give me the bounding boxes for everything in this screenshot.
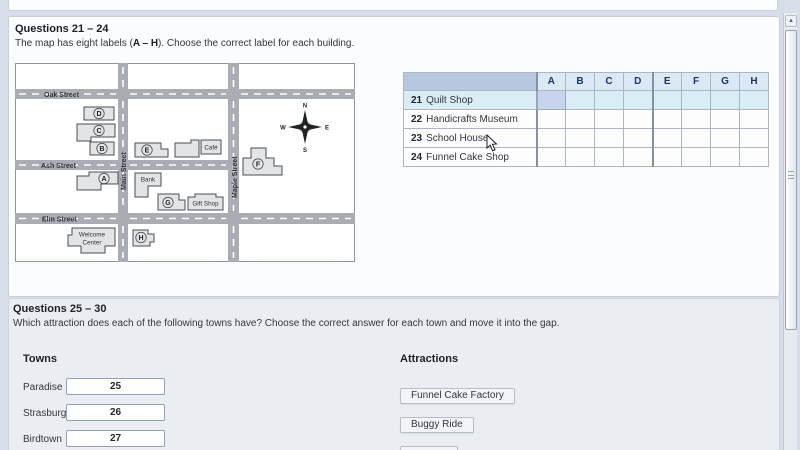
scrollbar-grip-icon bbox=[788, 171, 794, 179]
answer-cell-23-g[interactable] bbox=[711, 129, 740, 148]
answer-cell-21-b[interactable] bbox=[566, 91, 595, 110]
map-label-a: A bbox=[101, 176, 106, 183]
compass-w: W bbox=[280, 126, 286, 132]
grid-corner-cell bbox=[404, 73, 537, 91]
bank-label: Bank bbox=[141, 177, 156, 184]
oak-street-label: Oak Street bbox=[44, 92, 80, 99]
col-header-b: B bbox=[566, 73, 595, 91]
compass-s: S bbox=[303, 148, 307, 154]
welcome-center-label-1: Welcome bbox=[79, 232, 106, 239]
gap-input-25[interactable]: 25 bbox=[66, 378, 165, 395]
section-instruction: The map has eight labels (A – H). Choose… bbox=[15, 38, 354, 49]
main-street-label: Main Street bbox=[121, 152, 128, 190]
town-map: Oak Street Ash Street Elm Street Main St… bbox=[15, 63, 355, 262]
answer-cell-24-d[interactable] bbox=[624, 148, 653, 167]
answer-cell-21-f[interactable] bbox=[682, 91, 711, 110]
map-label-c: C bbox=[96, 128, 101, 135]
town-label-strasburg: Strasburg bbox=[23, 408, 66, 419]
col-header-f: F bbox=[682, 73, 711, 91]
gift-shop-label: Gift Shop bbox=[192, 201, 219, 208]
answer-cell-23-f[interactable] bbox=[682, 129, 711, 148]
answer-cell-22-g[interactable] bbox=[711, 110, 740, 129]
col-header-d: D bbox=[624, 73, 653, 91]
map-label-b: B bbox=[99, 146, 104, 153]
test-screen: Questions 21 – 24 The map has eight labe… bbox=[0, 0, 800, 450]
gap-input-27[interactable]: 27 bbox=[66, 430, 165, 447]
question-row-21: 21Quilt Shop bbox=[404, 91, 769, 110]
scrollbar-thumb[interactable] bbox=[785, 30, 797, 330]
towns-heading: Towns bbox=[23, 353, 57, 365]
col-header-a: A bbox=[537, 73, 566, 91]
cafe-label: Café bbox=[204, 145, 218, 152]
scroll-up-button[interactable]: ▲ bbox=[785, 15, 797, 27]
answer-cell-24-c[interactable] bbox=[595, 148, 624, 167]
question-row-24: 24Funnel Cake Shop bbox=[404, 148, 769, 167]
col-header-h: H bbox=[740, 73, 769, 91]
answer-cell-22-h[interactable] bbox=[740, 110, 769, 129]
question-label-24: 24Funnel Cake Shop bbox=[404, 148, 537, 167]
attractions-heading: Attractions bbox=[400, 353, 458, 365]
compass-n: N bbox=[303, 104, 307, 110]
answer-cell-24-f[interactable] bbox=[682, 148, 711, 167]
elm-street-label: Elm Street bbox=[42, 217, 77, 224]
answer-cell-24-h[interactable] bbox=[740, 148, 769, 167]
section-heading-2: Questions 25 – 30 bbox=[13, 303, 107, 315]
answer-cell-21-h[interactable] bbox=[740, 91, 769, 110]
compass-e: E bbox=[325, 126, 329, 132]
answer-cell-21-c[interactable] bbox=[595, 91, 624, 110]
question-row-22: 22Handicrafts Museum bbox=[404, 110, 769, 129]
question-label-22: 22Handicrafts Museum bbox=[404, 110, 537, 129]
answer-cell-21-g[interactable] bbox=[711, 91, 740, 110]
answer-cell-23-c[interactable] bbox=[595, 129, 624, 148]
answer-cell-23-d[interactable] bbox=[624, 129, 653, 148]
map-label-g: G bbox=[165, 200, 171, 207]
answer-cell-22-c[interactable] bbox=[595, 110, 624, 129]
welcome-center-label-2: Center bbox=[83, 240, 102, 247]
answer-cell-23-e[interactable] bbox=[653, 129, 682, 148]
answer-grid: A B C D E F G H 21Quilt Shop bbox=[403, 72, 769, 167]
map-label-e: E bbox=[145, 148, 150, 155]
answer-cell-22-e[interactable] bbox=[653, 110, 682, 129]
col-header-g: G bbox=[711, 73, 740, 91]
answer-cell-24-e[interactable] bbox=[653, 148, 682, 167]
attraction-item-funnel-cake-factory[interactable]: Funnel Cake Factory bbox=[400, 388, 515, 404]
question-label-21: 21Quilt Shop bbox=[404, 91, 537, 110]
question-row-23: 23School House bbox=[404, 129, 769, 148]
answer-cell-21-a[interactable] bbox=[537, 91, 566, 110]
vertical-scrollbar[interactable]: ▲ bbox=[783, 13, 797, 450]
mouse-cursor-icon bbox=[486, 134, 499, 153]
town-map-image: Oak Street Ash Street Elm Street Main St… bbox=[15, 63, 355, 262]
answer-cell-24-a[interactable] bbox=[537, 148, 566, 167]
previous-section-strip bbox=[8, 0, 778, 11]
map-label-f: F bbox=[256, 162, 261, 169]
section-heading: Questions 21 – 24 bbox=[15, 23, 109, 35]
ash-street-label: Ash Street bbox=[41, 163, 77, 170]
answer-cell-24-g[interactable] bbox=[711, 148, 740, 167]
answer-cell-22-f[interactable] bbox=[682, 110, 711, 129]
col-header-c: C bbox=[595, 73, 624, 91]
answer-cell-21-e[interactable] bbox=[653, 91, 682, 110]
building-unlabeled bbox=[175, 140, 199, 157]
answer-cell-21-d[interactable] bbox=[624, 91, 653, 110]
maple-street-label: Maple Street bbox=[232, 156, 239, 198]
answer-cell-22-b[interactable] bbox=[566, 110, 595, 129]
section-instruction-2: Which attraction does each of the follow… bbox=[13, 318, 559, 329]
question-label-23: 23School House bbox=[404, 129, 537, 148]
col-header-e: E bbox=[653, 73, 682, 91]
answer-cell-24-b[interactable] bbox=[566, 148, 595, 167]
map-label-d: D bbox=[96, 111, 101, 118]
answer-cell-22-a[interactable] bbox=[537, 110, 566, 129]
town-label-birdtown: Birdtown bbox=[23, 434, 62, 445]
attraction-item-buggy-ride[interactable]: Buggy Ride bbox=[400, 417, 474, 433]
gap-input-26[interactable]: 26 bbox=[66, 404, 165, 421]
attraction-item-partially-hidden[interactable] bbox=[400, 446, 458, 450]
town-label-paradise: Paradise bbox=[23, 382, 62, 393]
answer-cell-23-b[interactable] bbox=[566, 129, 595, 148]
answer-cell-22-d[interactable] bbox=[624, 110, 653, 129]
answer-cell-23-h[interactable] bbox=[740, 129, 769, 148]
map-label-h: H bbox=[138, 235, 143, 242]
answer-cell-23-a[interactable] bbox=[537, 129, 566, 148]
